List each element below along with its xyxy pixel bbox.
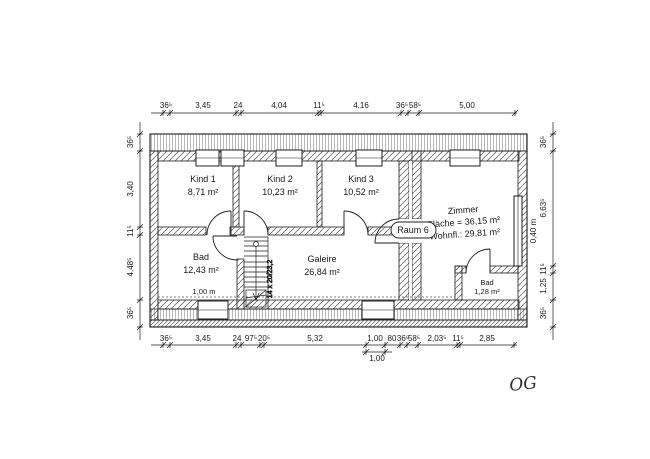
dim-chain-bottom2: 1,00 (362, 349, 392, 363)
dim-label-top-4: 11⁵ (313, 101, 325, 110)
room-label-kind1: Kind 1 (190, 174, 216, 184)
door-kind2 (244, 211, 268, 235)
door-bad-klein (466, 249, 490, 273)
dim-label-top-7: 58⁵ (409, 101, 421, 110)
room-area-kind2: 10,23 m² (262, 187, 298, 197)
dim-label-bottom-11: 11⁵ (452, 334, 464, 343)
dim-label-left-1: 3,40 (126, 181, 135, 197)
door-kind1 (207, 211, 231, 235)
dim-chain-left: 36⁵3,4011⁵4,48⁵36⁵ (126, 122, 143, 340)
wall-south-kind-3 (268, 227, 344, 235)
dim-label-bottom-10: 2,03⁵ (428, 334, 447, 343)
wall-kind1-kind2 (233, 161, 239, 227)
window-width-label: 0,40 m (529, 218, 538, 243)
raum6-stamp: Raum 6 (391, 222, 436, 238)
wall-bad2-left (455, 266, 462, 300)
window-zimmer (450, 150, 480, 166)
height-line-label: 1,00 m (193, 287, 216, 296)
window-zimmer-east (514, 196, 522, 266)
dim-label-bottom2-0: 1,00 (369, 354, 385, 363)
dim-label-left-2: 11⁵ (126, 225, 135, 237)
wall-zimmer-west-b2 (412, 243, 421, 300)
dim-label-right-4: 36⁵ (539, 307, 548, 319)
dim-label-right-2: 11⁵ (539, 263, 548, 275)
dim-label-top-0: 36⁵ (160, 101, 172, 110)
dim-label-right-1: 6,63⁵ (539, 199, 548, 218)
dim-label-top-1: 3,45 (195, 101, 211, 110)
dim-label-bottom-0: 36⁵ (160, 334, 172, 343)
raum6-label: Raum 6 (397, 225, 429, 235)
dim-label-bottom-6: 1,00 (367, 334, 383, 343)
dim-label-bottom-3: 97⁵ (245, 334, 257, 343)
wall-left (150, 151, 158, 320)
room-label-bad-klein: Bad (480, 278, 493, 287)
dim-label-bottom-7: 80 (388, 334, 397, 343)
room-wohnfl-zimmer: Wohnfl.: 29,81 m² (429, 227, 500, 242)
wall-south-kind-1 (158, 227, 206, 235)
dim-label-top-5: 4,16 (353, 101, 369, 110)
room-area-kind1: 8,71 m² (188, 187, 219, 197)
dim-label-top-3: 4,04 (271, 101, 287, 110)
dim-label-bottom-2: 24 (233, 334, 242, 343)
stair-walkline-start (254, 242, 259, 247)
dim-chain-top: 36⁵3,45244,0411⁵4,1636⁵58⁵5,00 (151, 101, 518, 116)
wall-zimmer-west-b1 (412, 151, 421, 219)
dim-label-left-0: 36⁵ (126, 136, 135, 148)
room-area-galerie: 26,84 m² (304, 267, 340, 277)
dim-chain-right: 36⁵6,63⁵11⁵1,2536⁵ (539, 122, 556, 340)
wall-stair-shaft (237, 259, 244, 309)
window-kind3 (356, 150, 382, 166)
floorplan-drawing: 1,00 m 14 x 20/23,2 Kind 1 8,71 m² Kind … (0, 0, 650, 459)
stairs-symbol: 14 x 20/23,2 (244, 237, 274, 309)
wall-zimmer-west-a2 (399, 243, 409, 300)
room-label-galerie: Galeire (307, 254, 336, 264)
wall-kind2-kind3 (317, 161, 322, 227)
dim-label-right-3: 1,25 (539, 278, 548, 294)
dim-label-top-8: 5,00 (459, 101, 475, 110)
stair-label: 14 x 20/23,2 (267, 260, 274, 299)
dim-label-bottom-4: 20⁵ (258, 334, 270, 343)
room-label-bad: Bad (193, 252, 209, 262)
wall-bad2-top-2 (490, 266, 518, 273)
dim-label-left-4: 36⁵ (126, 307, 135, 319)
window-galerie-south (362, 301, 394, 319)
window-bad-south (198, 301, 228, 319)
door-bad (213, 236, 237, 260)
window-kind2 (276, 150, 302, 166)
dim-label-right-0: 36⁵ (539, 136, 548, 148)
dim-label-top-2: 24 (234, 101, 243, 110)
bottom-eave-band (150, 320, 527, 327)
room-label-kind3: Kind 3 (348, 174, 374, 184)
room-label-kind2: Kind 2 (267, 174, 293, 184)
dim-label-bottom-12: 2,85 (479, 334, 495, 343)
top-kneewall-band (150, 134, 527, 151)
dim-label-top-6: 36⁵ (396, 101, 408, 110)
wall-zimmer-west-a1 (399, 161, 409, 219)
dim-label-left-3: 4,48⁵ (126, 258, 135, 277)
dim-chain-bottom: 36⁵3,452497⁵20⁵5,321,008036⁵58⁵2,03⁵11⁵2… (151, 334, 517, 348)
dim-label-bottom-1: 3,45 (195, 334, 211, 343)
door-kind3 (344, 211, 368, 235)
room-area-bad: 12,43 m² (183, 265, 219, 275)
dim-label-bottom-9: 58⁵ (408, 334, 420, 343)
floorplan-page: 1,00 m 14 x 20/23,2 Kind 1 8,71 m² Kind … (0, 0, 650, 459)
room-label-zimmer: Zimmer (447, 204, 478, 216)
room-area-kind3: 10,52 m² (343, 187, 379, 197)
floor-label-og: OG (508, 373, 537, 396)
room-area-bad-klein: 1,28 m² (474, 287, 500, 296)
dim-label-bottom-5: 5,32 (307, 334, 323, 343)
wall-south-kind-2 (230, 227, 244, 235)
